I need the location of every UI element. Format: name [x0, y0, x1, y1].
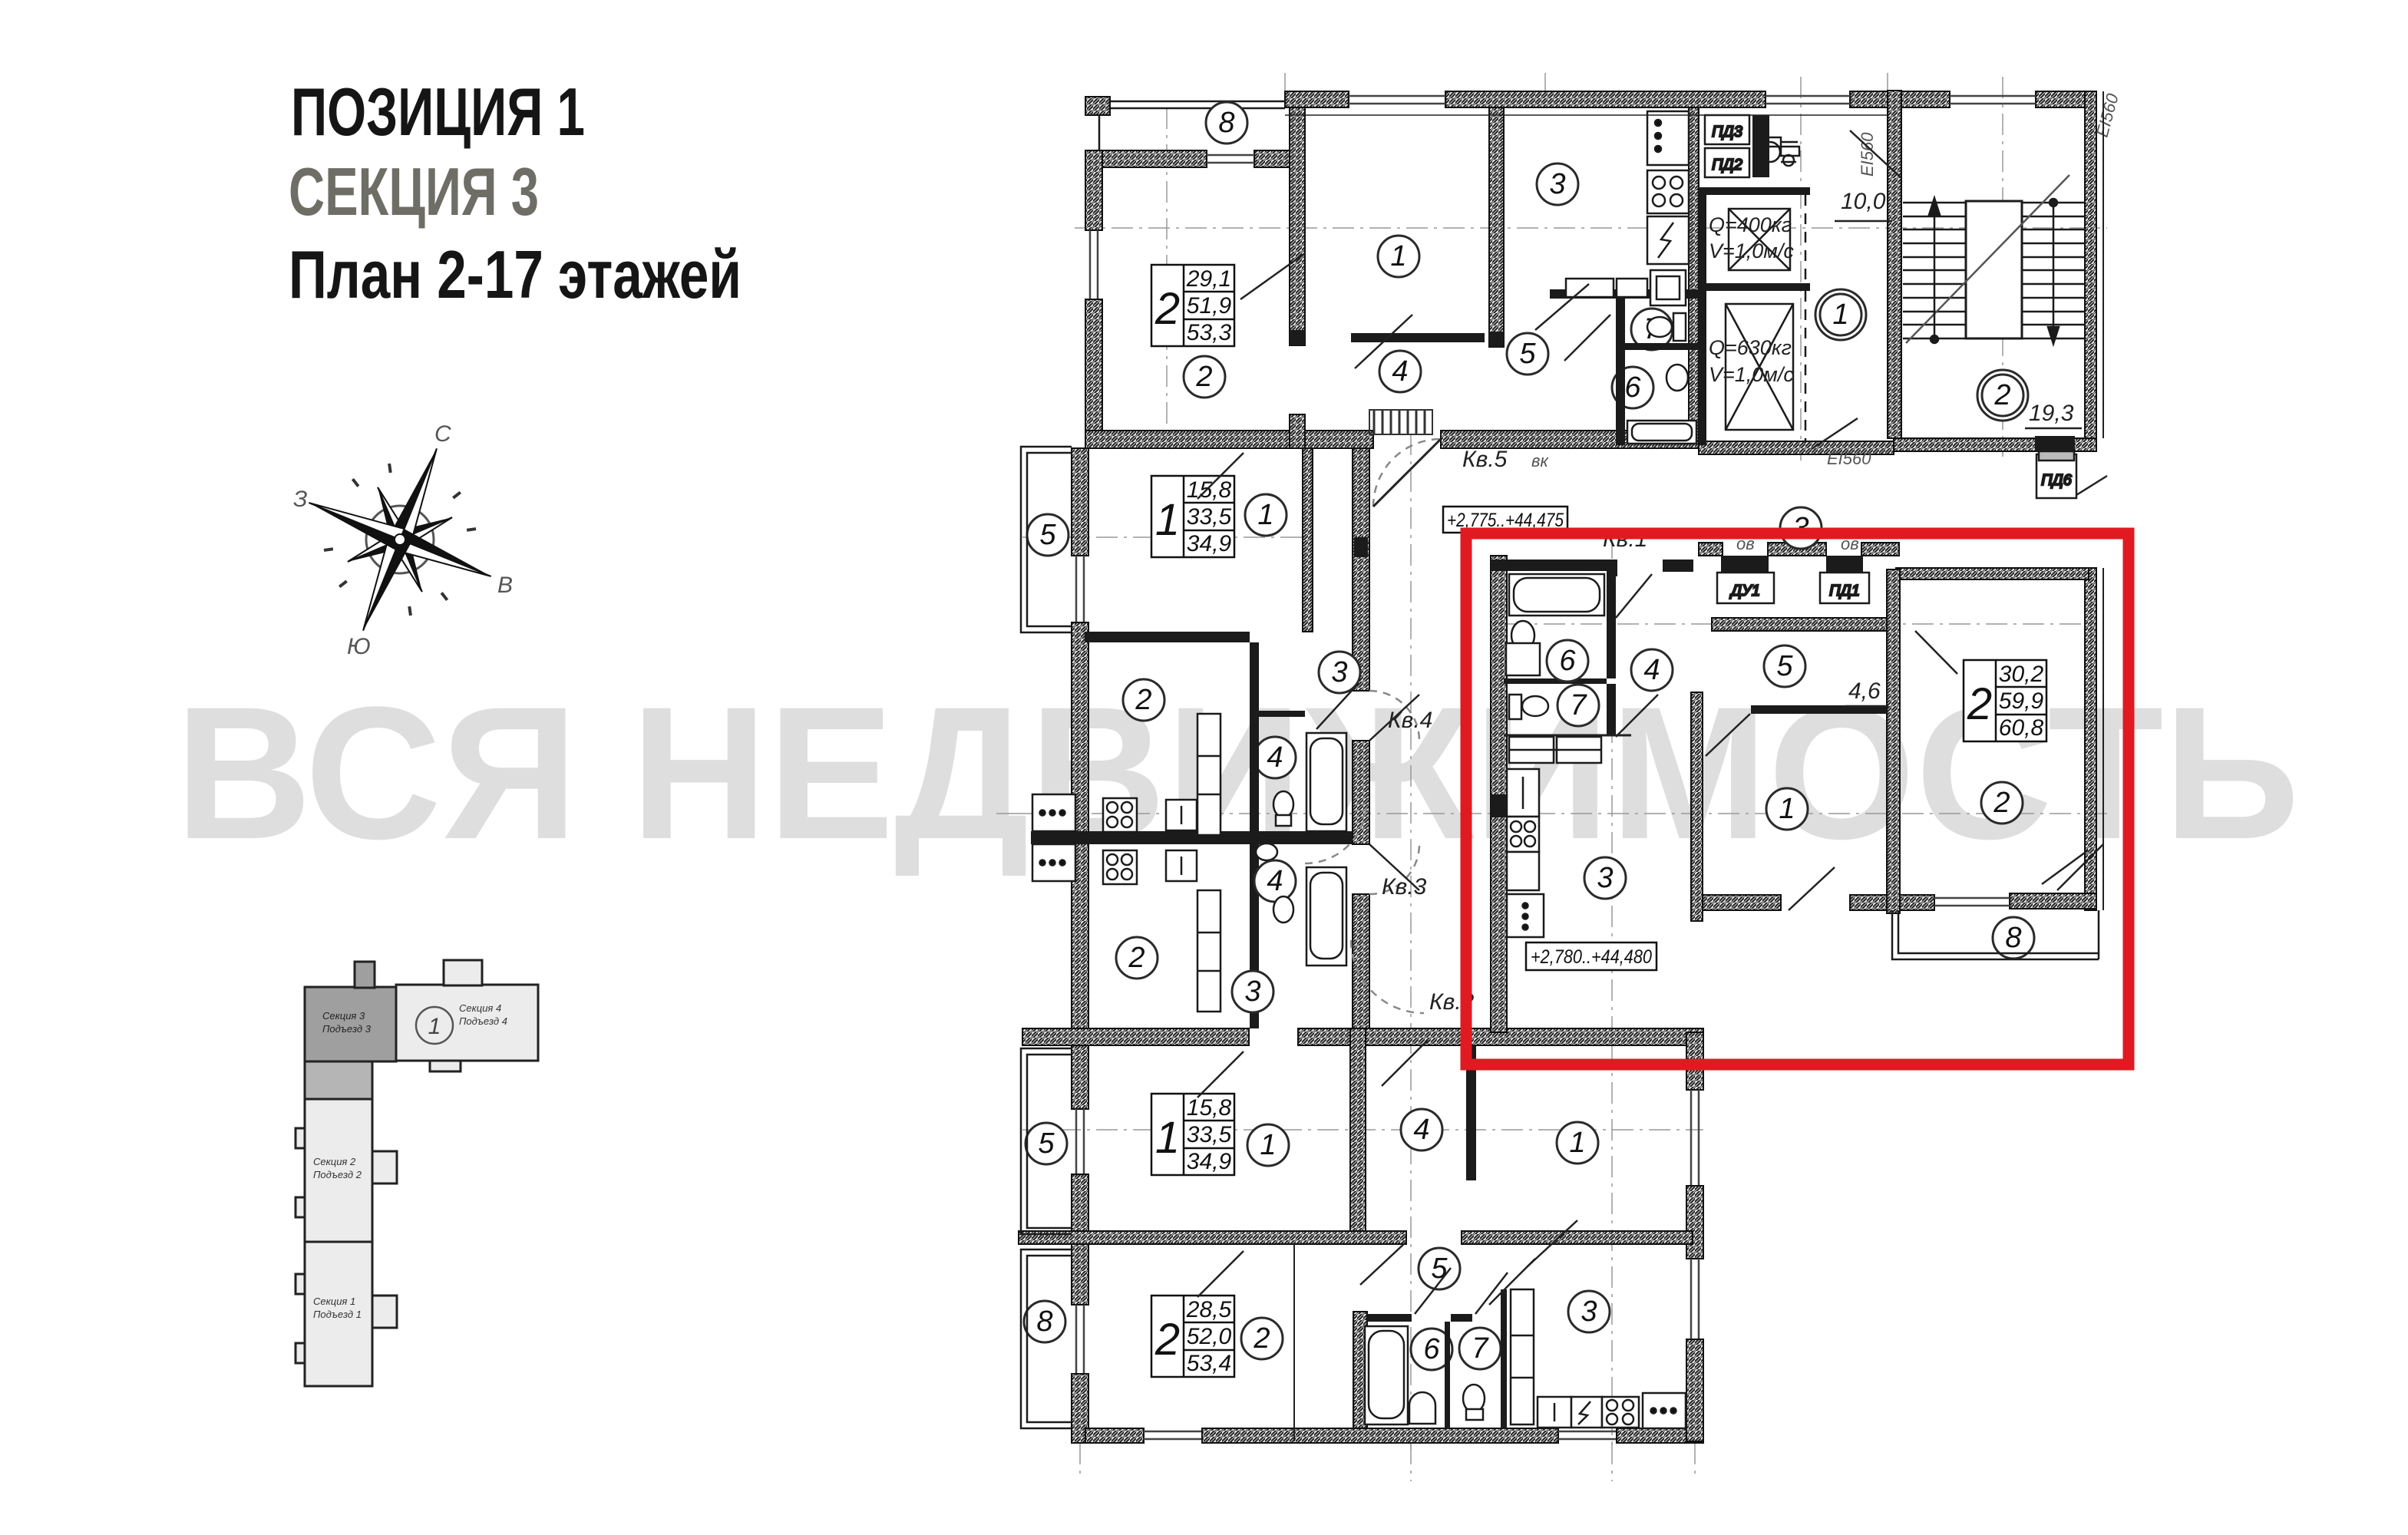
svg-text:5: 5 — [1039, 519, 1056, 551]
svg-text:ДУ1: ДУ1 — [1729, 583, 1760, 599]
svg-text:4: 4 — [1413, 1114, 1429, 1146]
svg-text:1: 1 — [1155, 1113, 1180, 1163]
svg-text:EI560: EI560 — [1858, 132, 1877, 177]
svg-text:1: 1 — [1155, 495, 1180, 545]
svg-text:2: 2 — [1154, 1315, 1180, 1365]
svg-text:28,5: 28,5 — [1186, 1297, 1232, 1322]
svg-text:Кв.5: Кв.5 — [1462, 447, 1508, 472]
svg-text:60,8: 60,8 — [1999, 715, 2044, 741]
svg-text:2: 2 — [1195, 361, 1212, 393]
svg-text:6: 6 — [1624, 371, 1641, 404]
svg-text:Подъезд 3: Подъезд 3 — [322, 1023, 372, 1035]
svg-text:1: 1 — [1779, 793, 1795, 825]
svg-text:Секция 4: Секция 4 — [459, 1002, 501, 1014]
svg-text:Подъезд 4: Подъезд 4 — [459, 1015, 507, 1027]
svg-text:1: 1 — [1569, 1127, 1585, 1159]
svg-text:ПД6: ПД6 — [2041, 472, 2073, 489]
svg-text:1: 1 — [1260, 1129, 1276, 1161]
svg-text:10,0: 10,0 — [1841, 189, 1886, 214]
svg-text:1: 1 — [428, 1014, 441, 1039]
svg-text:4: 4 — [1267, 741, 1283, 774]
svg-text:29,1: 29,1 — [1186, 266, 1231, 292]
svg-text:4: 4 — [1392, 355, 1408, 388]
svg-text:15,8: 15,8 — [1187, 477, 1232, 503]
svg-text:Кв.4: Кв.4 — [1388, 708, 1432, 733]
svg-text:ПОЗИЦИЯ 1: ПОЗИЦИЯ 1 — [291, 74, 585, 150]
svg-text:8: 8 — [2005, 922, 2021, 954]
svg-text:1: 1 — [1390, 240, 1406, 272]
svg-text:4: 4 — [1267, 865, 1283, 897]
svg-text:Кв.3: Кв.3 — [1382, 874, 1427, 900]
svg-text:вк: вк — [1531, 451, 1549, 470]
svg-text:19,3: 19,3 — [2029, 401, 2074, 426]
svg-text:30,2: 30,2 — [1999, 662, 2044, 687]
svg-text:1: 1 — [1257, 499, 1273, 531]
svg-text:2: 2 — [1993, 787, 2010, 819]
svg-text:2: 2 — [1135, 684, 1151, 716]
svg-text:3: 3 — [1597, 862, 1613, 894]
svg-text:7: 7 — [1472, 1332, 1489, 1365]
svg-text:51,9: 51,9 — [1187, 293, 1232, 319]
svg-text:З: З — [293, 487, 307, 512]
svg-text:2: 2 — [1967, 679, 1992, 729]
svg-text:53,4: 53,4 — [1187, 1351, 1231, 1376]
svg-text:С: С — [434, 421, 451, 447]
svg-text:План 2-17 этажей: План 2-17 этажей — [289, 236, 742, 312]
svg-text:Секция 2: Секция 2 — [313, 1156, 356, 1167]
svg-text:СЕКЦИЯ 3: СЕКЦИЯ 3 — [289, 153, 539, 229]
svg-text:2: 2 — [1128, 942, 1145, 974]
svg-text:ПД1: ПД1 — [1829, 583, 1860, 599]
svg-text:33,5: 33,5 — [1187, 1122, 1232, 1147]
svg-text:4: 4 — [1643, 654, 1660, 686]
svg-text:3: 3 — [1581, 1296, 1597, 1328]
svg-text:3: 3 — [1331, 656, 1347, 688]
svg-text:3: 3 — [1549, 168, 1565, 200]
svg-text:4,6: 4,6 — [1848, 678, 1881, 704]
svg-text:34,9: 34,9 — [1187, 1149, 1232, 1174]
svg-text:6: 6 — [1423, 1333, 1440, 1365]
svg-text:6: 6 — [1559, 645, 1576, 677]
svg-text:V=1,0м/с: V=1,0м/с — [1709, 363, 1794, 386]
svg-text:5: 5 — [1431, 1253, 1448, 1285]
svg-text:ПД3: ПД3 — [1712, 124, 1742, 140]
svg-text:8: 8 — [1036, 1306, 1052, 1338]
svg-text:Подъезд 1: Подъезд 1 — [313, 1309, 362, 1320]
svg-text:33,5: 33,5 — [1187, 504, 1232, 530]
svg-text:EI560: EI560 — [1827, 449, 1871, 468]
svg-text:2: 2 — [1154, 284, 1180, 334]
svg-text:5: 5 — [1519, 338, 1536, 370]
svg-text:3: 3 — [1244, 975, 1260, 1008]
svg-text:+2,780..+44,480: +2,780..+44,480 — [1531, 946, 1652, 968]
svg-text:Ю: Ю — [347, 634, 371, 659]
svg-text:В: В — [497, 573, 513, 598]
svg-text:1: 1 — [1832, 299, 1848, 331]
svg-text:Q=400кг: Q=400кг — [1709, 213, 1792, 236]
svg-text:5: 5 — [1038, 1127, 1055, 1160]
svg-text:2: 2 — [1253, 1322, 1270, 1355]
svg-text:Секция 1: Секция 1 — [313, 1296, 355, 1307]
svg-text:Подъезд 2: Подъезд 2 — [313, 1169, 362, 1180]
svg-text:2: 2 — [1993, 379, 2010, 411]
svg-text:59,9: 59,9 — [1999, 688, 2044, 714]
svg-text:52,0: 52,0 — [1187, 1324, 1232, 1349]
svg-text:5: 5 — [1776, 650, 1793, 682]
svg-text:53,3: 53,3 — [1187, 320, 1232, 345]
svg-text:15,8: 15,8 — [1187, 1095, 1232, 1121]
svg-text:Q=630кг: Q=630кг — [1709, 336, 1792, 359]
svg-text:8: 8 — [1218, 107, 1234, 139]
svg-text:V=1,0м/с: V=1,0м/с — [1709, 239, 1794, 262]
svg-text:34,9: 34,9 — [1187, 531, 1232, 556]
svg-text:Секция 3: Секция 3 — [322, 1010, 365, 1022]
svg-text:ПД2: ПД2 — [1712, 157, 1742, 173]
svg-text:7: 7 — [1570, 689, 1587, 721]
